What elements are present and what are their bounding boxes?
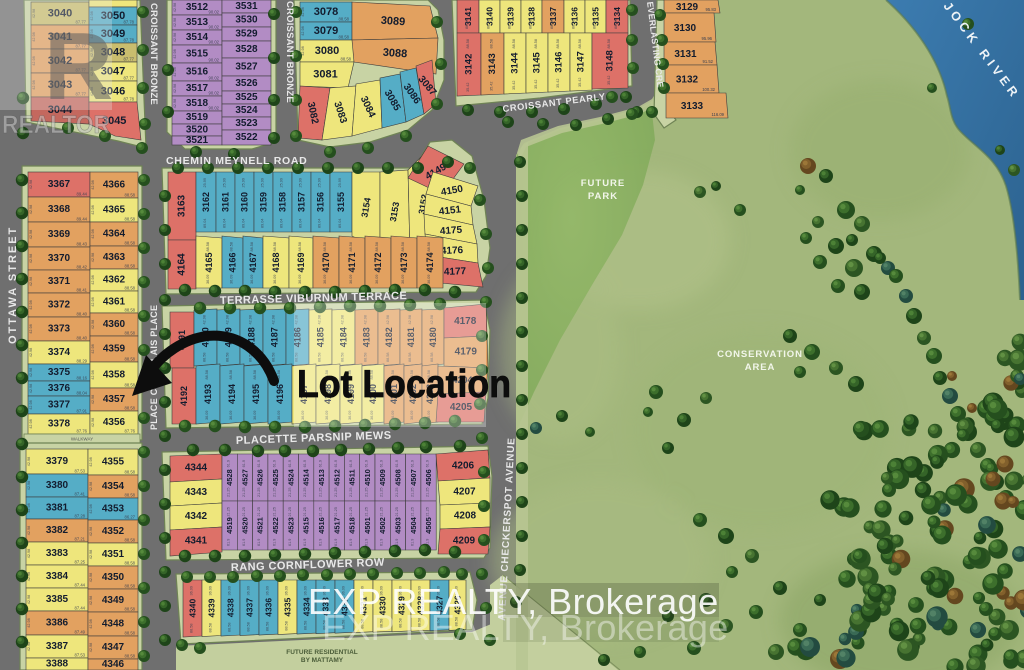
svg-text:4348: 4348: [102, 619, 125, 630]
svg-text:3379: 3379: [46, 456, 69, 467]
svg-text:88.40: 88.40: [77, 336, 88, 341]
svg-text:4193: 4193: [203, 384, 213, 404]
svg-text:42.98: 42.98: [29, 300, 33, 310]
svg-text:88.58: 88.58: [125, 308, 136, 313]
svg-text:3520: 3520: [186, 125, 209, 136]
svg-text:88.58: 88.58: [125, 493, 136, 498]
svg-text:4513: 4513: [317, 469, 326, 486]
svg-text:88.58: 88.58: [250, 242, 254, 252]
svg-text:4344: 4344: [185, 462, 208, 473]
svg-text:21.25: 21.25: [227, 487, 231, 497]
svg-text:42.98: 42.98: [203, 315, 207, 325]
svg-text:4514: 4514: [302, 468, 311, 486]
svg-text:88.43: 88.43: [77, 242, 88, 247]
svg-text:42.98: 42.98: [173, 33, 177, 43]
svg-text:88.58: 88.58: [339, 35, 350, 40]
svg-text:42.98: 42.98: [91, 395, 95, 405]
svg-text:87.77: 87.77: [124, 57, 135, 62]
svg-text:R: R: [44, 13, 113, 120]
svg-text:4209: 4209: [453, 536, 476, 547]
svg-text:88.58: 88.58: [190, 623, 194, 633]
svg-text:88.58: 88.58: [607, 39, 611, 49]
svg-text:42.98: 42.98: [173, 49, 177, 59]
svg-text:BY MATTAMY: BY MATTAMY: [301, 657, 344, 664]
svg-text:4508: 4508: [394, 469, 403, 486]
svg-text:89.04: 89.04: [299, 218, 303, 228]
svg-text:25.99: 25.99: [242, 178, 246, 188]
svg-text:21.25: 21.25: [349, 507, 353, 517]
svg-text:3527: 3527: [235, 62, 258, 73]
svg-text:4526: 4526: [256, 469, 265, 486]
svg-text:88.58: 88.58: [298, 242, 302, 252]
svg-text:42.98: 42.98: [91, 370, 95, 380]
svg-text:42.98: 42.98: [91, 320, 95, 330]
svg-text:88.58: 88.58: [203, 352, 207, 362]
svg-text:3368: 3368: [48, 204, 71, 215]
svg-text:21.25: 21.25: [380, 507, 384, 517]
svg-text:3367: 3367: [48, 179, 71, 190]
svg-text:3528: 3528: [235, 44, 258, 55]
svg-text:89.44: 89.44: [77, 192, 88, 197]
svg-text:4172: 4172: [373, 252, 383, 272]
svg-text:88.58: 88.58: [206, 242, 210, 252]
svg-text:88.58: 88.58: [272, 352, 276, 362]
svg-text:88.58: 88.58: [401, 242, 405, 252]
svg-text:88.58: 88.58: [247, 622, 251, 632]
svg-text:42.98: 42.98: [29, 324, 33, 334]
svg-text:4360: 4360: [103, 319, 126, 330]
svg-text:42.98: 42.98: [29, 384, 33, 394]
svg-text:EXP REALTY, Brokerage: EXP REALTY, Brokerage: [322, 607, 729, 648]
svg-text:4502: 4502: [378, 517, 387, 534]
svg-text:4343: 4343: [185, 487, 208, 498]
svg-text:3529: 3529: [235, 29, 258, 40]
svg-text:21.25: 21.25: [395, 507, 399, 517]
svg-text:88.58: 88.58: [266, 622, 270, 632]
svg-text:3517: 3517: [186, 83, 209, 94]
svg-text:4364: 4364: [103, 229, 126, 240]
svg-text:36.09: 36.09: [209, 586, 213, 596]
svg-text:61.9: 61.9: [349, 460, 353, 467]
svg-text:42.98: 42.98: [301, 26, 305, 36]
svg-text:61.9: 61.9: [380, 460, 384, 467]
svg-text:35.42: 35.42: [534, 79, 538, 89]
svg-text:42.98: 42.98: [91, 205, 95, 215]
svg-text:WALKWAY: WALKWAY: [71, 437, 93, 442]
svg-text:88.58: 88.58: [512, 39, 516, 49]
svg-text:42.98: 42.98: [29, 205, 33, 215]
svg-text:4356: 4356: [103, 417, 126, 428]
svg-text:4353: 4353: [102, 504, 125, 515]
svg-text:42.98: 42.98: [29, 368, 33, 378]
svg-text:4503: 4503: [394, 517, 403, 534]
svg-text:88.58: 88.58: [614, 19, 618, 29]
svg-text:3078: 3078: [314, 6, 338, 18]
svg-text:42.98: 42.98: [91, 297, 95, 307]
svg-text:3512: 3512: [186, 2, 209, 13]
svg-text:3370: 3370: [48, 253, 71, 264]
svg-text:88.58: 88.58: [490, 39, 494, 49]
svg-text:3081: 3081: [313, 69, 337, 81]
svg-text:3383: 3383: [46, 548, 69, 559]
svg-text:21.25: 21.25: [364, 507, 368, 517]
svg-text:3524: 3524: [235, 105, 258, 116]
svg-text:4207: 4207: [453, 486, 476, 497]
svg-text:3523: 3523: [235, 118, 258, 129]
svg-text:42.98: 42.98: [27, 549, 31, 559]
svg-text:3388: 3388: [46, 659, 69, 670]
svg-text:90.02: 90.02: [209, 25, 220, 30]
svg-text:88.58: 88.58: [230, 242, 234, 252]
svg-text:42.98: 42.98: [173, 84, 177, 94]
svg-text:35.42: 35.42: [512, 80, 516, 90]
svg-text:21.25: 21.25: [288, 487, 292, 497]
svg-text:42.98: 42.98: [29, 230, 33, 240]
svg-text:4206: 4206: [452, 460, 475, 471]
svg-text:21.25: 21.25: [319, 507, 323, 517]
svg-text:87.53: 87.53: [75, 653, 86, 658]
svg-text:88.58: 88.58: [349, 242, 353, 252]
svg-text:88.58: 88.58: [285, 621, 289, 631]
svg-text:88.58: 88.58: [125, 631, 136, 636]
svg-text:42.98: 42.98: [27, 481, 31, 491]
svg-text:FUTURE RESIDENTIAL: FUTURE RESIDENTIAL: [286, 649, 358, 656]
svg-text:88.58: 88.58: [556, 39, 560, 49]
svg-text:4512: 4512: [332, 469, 341, 486]
svg-text:36.09: 36.09: [323, 274, 327, 284]
svg-text:21.25: 21.25: [257, 487, 261, 497]
svg-text:3372: 3372: [48, 300, 71, 311]
svg-text:36.09: 36.09: [247, 586, 251, 596]
svg-text:3369: 3369: [48, 229, 71, 240]
svg-text:36.09: 36.09: [230, 274, 234, 284]
svg-text:88.58: 88.58: [341, 57, 352, 62]
svg-text:88.58: 88.58: [487, 19, 491, 29]
svg-text:87.44: 87.44: [75, 606, 86, 611]
svg-text:4165: 4165: [204, 252, 214, 272]
svg-text:AREA: AREA: [745, 362, 776, 373]
svg-text:42.98: 42.98: [27, 526, 31, 536]
svg-text:4350: 4350: [102, 572, 125, 583]
svg-text:3157: 3157: [297, 192, 307, 212]
svg-text:36.09: 36.09: [273, 274, 277, 284]
svg-text:4340: 4340: [188, 598, 198, 617]
svg-text:4518: 4518: [348, 517, 357, 534]
svg-text:21.25: 21.25: [334, 507, 338, 517]
svg-text:88.04: 88.04: [77, 391, 88, 396]
svg-text:89.04: 89.04: [242, 218, 246, 228]
svg-text:61.9: 61.9: [380, 539, 384, 546]
svg-text:88.58: 88.58: [125, 241, 136, 246]
svg-text:61.9: 61.9: [242, 460, 246, 467]
svg-text:4527: 4527: [241, 469, 250, 486]
svg-text:61.9: 61.9: [303, 539, 307, 546]
svg-text:42.98: 42.98: [29, 348, 33, 358]
svg-text:42.98: 42.98: [91, 229, 95, 239]
svg-text:61.9: 61.9: [303, 460, 307, 467]
svg-text:21.25: 21.25: [242, 507, 246, 517]
svg-text:25.99: 25.99: [338, 178, 342, 188]
svg-text:61.9: 61.9: [257, 539, 261, 546]
svg-text:61.9: 61.9: [334, 460, 338, 467]
svg-text:88.58: 88.58: [125, 357, 136, 362]
svg-text:88.58: 88.58: [534, 39, 538, 49]
svg-text:35.42: 35.42: [466, 82, 470, 92]
svg-text:4362: 4362: [103, 275, 126, 286]
svg-text:4341: 4341: [185, 536, 208, 547]
svg-text:3385: 3385: [46, 594, 69, 605]
svg-text:4342: 4342: [185, 511, 208, 522]
svg-text:4164: 4164: [177, 253, 188, 276]
svg-text:4520: 4520: [241, 517, 250, 534]
svg-text:36.09: 36.09: [349, 274, 353, 284]
svg-text:87.25: 87.25: [75, 560, 86, 565]
svg-text:3519: 3519: [186, 112, 209, 123]
svg-text:4335: 4335: [283, 597, 293, 616]
svg-text:90.02: 90.02: [209, 10, 220, 15]
svg-text:90.02: 90.02: [209, 58, 220, 63]
svg-text:61.9: 61.9: [426, 460, 430, 467]
svg-text:4177: 4177: [444, 266, 467, 278]
svg-text:3145: 3145: [532, 52, 543, 74]
svg-text:4174: 4174: [425, 252, 435, 272]
svg-text:95.96: 95.96: [702, 36, 713, 41]
svg-text:42.98: 42.98: [27, 618, 31, 628]
svg-text:42.98: 42.98: [29, 400, 33, 410]
svg-text:88.58: 88.58: [304, 621, 308, 631]
svg-text:87.49: 87.49: [75, 630, 86, 635]
svg-text:25.99: 25.99: [280, 178, 284, 188]
svg-text:3513: 3513: [186, 17, 209, 28]
svg-text:88.58: 88.58: [593, 19, 597, 29]
svg-text:88.58: 88.58: [466, 39, 470, 49]
svg-text:87.28: 87.28: [75, 514, 86, 519]
svg-text:3526: 3526: [235, 78, 258, 89]
svg-text:3155: 3155: [336, 192, 346, 212]
svg-text:3373: 3373: [48, 324, 71, 335]
svg-text:87.77: 87.77: [124, 76, 135, 81]
svg-text:21.25: 21.25: [242, 487, 246, 497]
svg-text:42.98: 42.98: [89, 550, 93, 560]
svg-text:CROISSANT BRONZE: CROISSANT BRONZE: [148, 3, 159, 105]
svg-text:36.09: 36.09: [205, 410, 209, 420]
svg-text:36.09: 36.09: [298, 274, 302, 284]
svg-text:4355: 4355: [102, 457, 125, 468]
svg-text:61.9: 61.9: [257, 460, 261, 467]
svg-text:88.58: 88.58: [508, 19, 512, 29]
svg-text:42.98: 42.98: [89, 619, 93, 629]
svg-text:88.40: 88.40: [77, 312, 88, 317]
svg-text:25.99: 25.99: [299, 178, 303, 188]
svg-text:4504: 4504: [409, 516, 418, 534]
svg-text:36.09: 36.09: [250, 274, 254, 284]
svg-text:25.99: 25.99: [223, 178, 227, 188]
svg-text:4352: 4352: [102, 526, 125, 537]
svg-text:90.02: 90.02: [209, 76, 220, 81]
svg-text:3378: 3378: [48, 419, 71, 430]
svg-text:4349: 4349: [102, 595, 125, 606]
svg-text:87.76: 87.76: [77, 429, 88, 434]
svg-text:3158: 3158: [278, 192, 288, 212]
svg-text:88.58: 88.58: [228, 622, 232, 632]
svg-text:35.42: 35.42: [556, 78, 560, 88]
svg-text:4357: 4357: [103, 394, 126, 405]
svg-text:4365: 4365: [103, 205, 126, 216]
svg-text:89.04: 89.04: [280, 218, 284, 228]
svg-text:42.98: 42.98: [173, 18, 177, 28]
svg-text:42.98: 42.98: [173, 99, 177, 109]
svg-text:87.78: 87.78: [124, 97, 135, 102]
svg-text:61.9: 61.9: [319, 539, 323, 546]
svg-text:42.98: 42.98: [272, 315, 276, 325]
svg-text:21.25: 21.25: [319, 487, 323, 497]
svg-text:61.9: 61.9: [349, 539, 353, 546]
svg-text:87.53: 87.53: [75, 469, 86, 474]
svg-text:88.58: 88.58: [529, 19, 533, 29]
svg-text:4511: 4511: [348, 469, 357, 485]
svg-text:88.58: 88.58: [125, 193, 136, 198]
svg-text:42.98: 42.98: [89, 643, 93, 653]
svg-text:4366: 4366: [103, 180, 126, 191]
svg-text:88.58: 88.58: [125, 654, 136, 659]
svg-text:25.99: 25.99: [203, 178, 207, 188]
svg-text:88.29: 88.29: [77, 359, 88, 364]
svg-text:4167: 4167: [248, 252, 258, 272]
svg-text:88.58: 88.58: [427, 242, 431, 252]
svg-text:4338: 4338: [226, 598, 236, 617]
svg-text:3089: 3089: [380, 15, 405, 29]
svg-text:25.99: 25.99: [318, 178, 322, 188]
svg-text:36.09: 36.09: [427, 274, 431, 284]
svg-text:CONSERVATION: CONSERVATION: [717, 349, 803, 360]
svg-text:3130: 3130: [674, 23, 697, 34]
svg-text:4506: 4506: [424, 469, 433, 486]
svg-text:FUTURE: FUTURE: [581, 178, 626, 189]
svg-text:3147: 3147: [576, 51, 587, 72]
svg-text:4166: 4166: [228, 252, 238, 272]
svg-text:42.98: 42.98: [89, 482, 93, 492]
svg-text:88.58: 88.58: [125, 561, 136, 566]
svg-text:3146: 3146: [554, 52, 565, 73]
svg-text:3144: 3144: [510, 52, 521, 74]
svg-text:3079: 3079: [314, 25, 338, 37]
svg-text:61.9: 61.9: [273, 539, 277, 546]
svg-text:3525: 3525: [235, 92, 258, 103]
svg-text:36.09: 36.09: [304, 586, 308, 596]
svg-text:3530: 3530: [235, 15, 258, 26]
svg-text:4521: 4521: [256, 517, 265, 534]
svg-text:42.98: 42.98: [29, 419, 33, 429]
svg-text:21.25: 21.25: [288, 507, 292, 517]
svg-text:90.02: 90.02: [209, 106, 220, 111]
svg-text:4507: 4507: [409, 469, 418, 486]
svg-text:4336: 4336: [264, 598, 274, 617]
svg-text:3382: 3382: [46, 525, 69, 536]
svg-text:88.58: 88.58: [125, 217, 136, 222]
svg-text:4168: 4168: [271, 252, 281, 272]
svg-text:21.25: 21.25: [334, 487, 338, 497]
svg-text:3160: 3160: [240, 192, 250, 212]
svg-text:116.09: 116.09: [712, 112, 725, 117]
svg-text:4192: 4192: [179, 386, 189, 406]
svg-text:4525: 4525: [271, 469, 280, 486]
svg-text:88.58: 88.58: [375, 242, 379, 252]
svg-text:42.98: 42.98: [173, 3, 177, 13]
svg-text:42.98: 42.98: [91, 418, 95, 428]
svg-text:42.98: 42.98: [89, 527, 93, 537]
svg-text:4517: 4517: [332, 517, 341, 534]
svg-text:3374: 3374: [48, 347, 71, 358]
svg-text:61.9: 61.9: [319, 460, 323, 467]
svg-text:42.98: 42.98: [91, 180, 95, 190]
svg-text:88.58: 88.58: [465, 19, 469, 29]
svg-text:3161: 3161: [221, 192, 231, 212]
svg-text:4358: 4358: [103, 370, 126, 381]
svg-text:61.9: 61.9: [227, 460, 231, 467]
svg-text:100.32: 100.32: [702, 87, 715, 92]
svg-text:61.9: 61.9: [288, 539, 292, 546]
svg-text:90.02: 90.02: [209, 91, 220, 96]
svg-text:88.58: 88.58: [125, 264, 136, 269]
svg-text:88.58: 88.58: [226, 352, 230, 362]
svg-text:88.58: 88.58: [323, 242, 327, 252]
svg-text:Lot Location: Lot Location: [297, 363, 511, 406]
svg-text:87.76: 87.76: [125, 429, 136, 434]
svg-text:4208: 4208: [454, 511, 477, 522]
svg-text:88.58: 88.58: [125, 584, 136, 589]
svg-text:88.42: 88.42: [77, 265, 88, 270]
svg-text:4528: 4528: [225, 469, 234, 486]
svg-text:61.9: 61.9: [273, 460, 277, 467]
svg-text:42.98: 42.98: [226, 315, 230, 325]
svg-text:35.42: 35.42: [578, 77, 582, 87]
svg-text:87.78: 87.78: [124, 20, 135, 25]
svg-text:3148: 3148: [605, 50, 616, 71]
svg-text:21.25: 21.25: [395, 487, 399, 497]
svg-text:3384: 3384: [46, 571, 69, 582]
svg-text:36.09: 36.09: [266, 586, 270, 596]
svg-text:88.58: 88.58: [578, 39, 582, 49]
svg-text:25.99: 25.99: [261, 178, 265, 188]
svg-text:21.25: 21.25: [380, 487, 384, 497]
svg-text:88.58: 88.58: [125, 406, 136, 411]
svg-text:3380: 3380: [46, 480, 69, 491]
svg-text:35.42: 35.42: [607, 75, 611, 85]
svg-text:4347: 4347: [102, 642, 125, 653]
svg-text:4171: 4171: [347, 252, 357, 272]
svg-text:88.58: 88.58: [125, 470, 136, 475]
svg-text:4175: 4175: [440, 225, 463, 238]
svg-text:88.58: 88.58: [273, 242, 277, 252]
svg-text:4505: 4505: [424, 517, 433, 534]
svg-text:88.58: 88.58: [125, 286, 136, 291]
svg-text:88.58: 88.58: [550, 19, 554, 29]
svg-text:4516: 4516: [317, 517, 326, 534]
svg-text:4359: 4359: [103, 344, 126, 355]
svg-text:42.98: 42.98: [89, 573, 93, 583]
svg-text:21.25: 21.25: [410, 507, 414, 517]
svg-text:88.58: 88.58: [572, 19, 576, 29]
svg-text:3521: 3521: [186, 135, 209, 146]
svg-text:3129: 3129: [676, 2, 699, 13]
svg-text:4346: 4346: [102, 659, 125, 670]
svg-text:4339: 4339: [207, 598, 217, 617]
svg-text:4176: 4176: [441, 245, 464, 257]
svg-text:87.78: 87.78: [124, 38, 135, 43]
svg-text:88.58: 88.58: [339, 17, 350, 22]
svg-text:89.44: 89.44: [77, 217, 88, 222]
svg-text:4363: 4363: [103, 252, 126, 263]
